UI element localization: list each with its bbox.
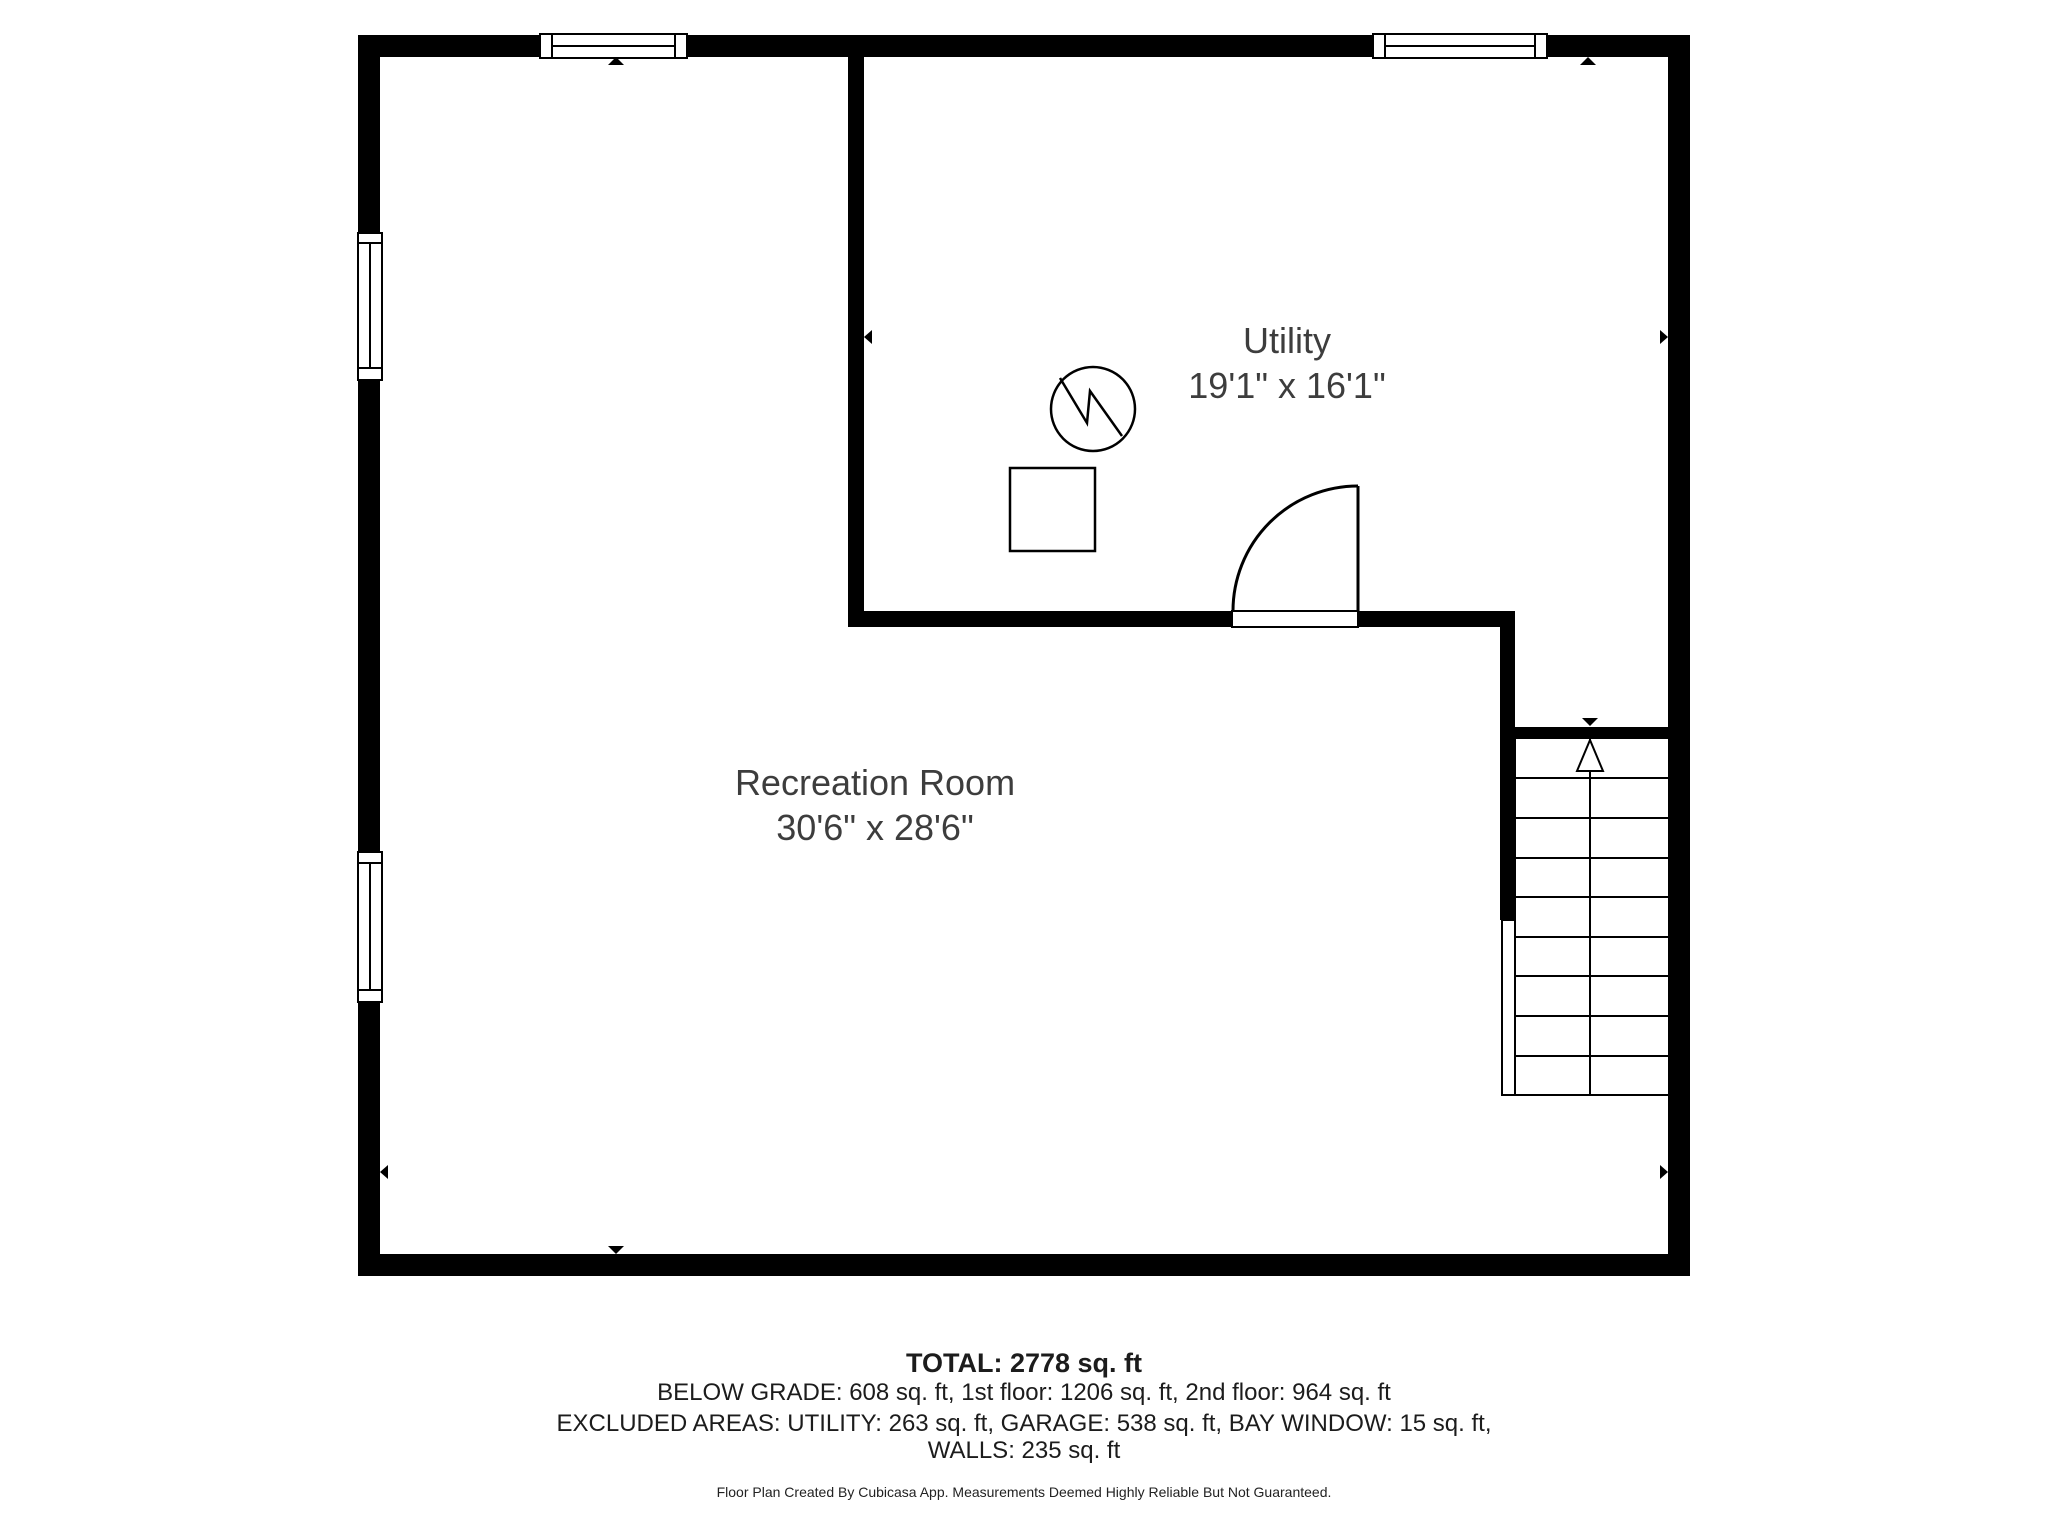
- door-threshold: [1232, 611, 1358, 627]
- floor-plan-page: Utility 19'1" x 16'1" Recreation Room 30…: [0, 0, 2048, 1536]
- stair-treads: [1502, 739, 1668, 1095]
- summary-walls: WALLS: 235 sq. ft: [0, 1436, 2048, 1466]
- utility-room-label: Utility 19'1" x 16'1": [1188, 318, 1385, 408]
- stair-railing: [1502, 920, 1515, 1095]
- exterior-walls: [358, 35, 1690, 1276]
- window-icon: [358, 852, 382, 1002]
- dimension-arrows: [380, 57, 1668, 1254]
- furnace-icon: [1010, 468, 1095, 551]
- summary-total: TOTAL: 2778 sq. ft: [0, 1348, 2048, 1378]
- floor-plan-canvas: [0, 0, 2048, 1536]
- wall-bottom: [358, 1254, 1690, 1276]
- dimension-arrow-down: [608, 1246, 624, 1254]
- wall-right: [1668, 35, 1690, 1276]
- staircase-up-arrow: [1577, 740, 1603, 771]
- room-name: Utility: [1188, 318, 1385, 363]
- windows: [358, 34, 1547, 1002]
- room-dimensions: 19'1" x 16'1": [1188, 363, 1385, 408]
- dimension-arrow-down: [1582, 718, 1598, 726]
- summary-excluded-areas: EXCLUDED AREAS: UTILITY: 263 sq. ft, GAR…: [0, 1409, 2048, 1439]
- wall-stair-left: [1500, 611, 1515, 920]
- recreation-room-label: Recreation Room 30'6" x 28'6": [735, 760, 1015, 850]
- dimension-arrow-right: [1660, 330, 1668, 344]
- window-icon: [540, 34, 687, 58]
- window-icon: [1373, 34, 1547, 58]
- dimension-arrow-left: [380, 1165, 388, 1179]
- wall-utility-bottom-left: [848, 611, 1232, 627]
- dimension-arrow-left: [864, 330, 872, 344]
- wall-left: [358, 35, 380, 1276]
- wall-utility-bottom-right: [1358, 611, 1515, 627]
- water-heater-icon: [1051, 367, 1135, 451]
- room-name: Recreation Room: [735, 760, 1015, 805]
- window-icon: [358, 233, 382, 380]
- door-swing-arc: [1233, 486, 1358, 611]
- room-dimensions: 30'6" x 28'6": [735, 805, 1015, 850]
- door: [1232, 486, 1358, 627]
- dimension-arrow-up: [1580, 57, 1596, 65]
- staircase: [1502, 739, 1668, 1095]
- summary-floors: BELOW GRADE: 608 sq. ft, 1st floor: 1206…: [0, 1378, 2048, 1408]
- dimension-arrow-right: [1660, 1165, 1668, 1179]
- wall-stair-top: [1515, 727, 1668, 739]
- wall-utility-left: [848, 57, 864, 627]
- summary-disclaimer: Floor Plan Created By Cubicasa App. Meas…: [0, 1483, 2048, 1501]
